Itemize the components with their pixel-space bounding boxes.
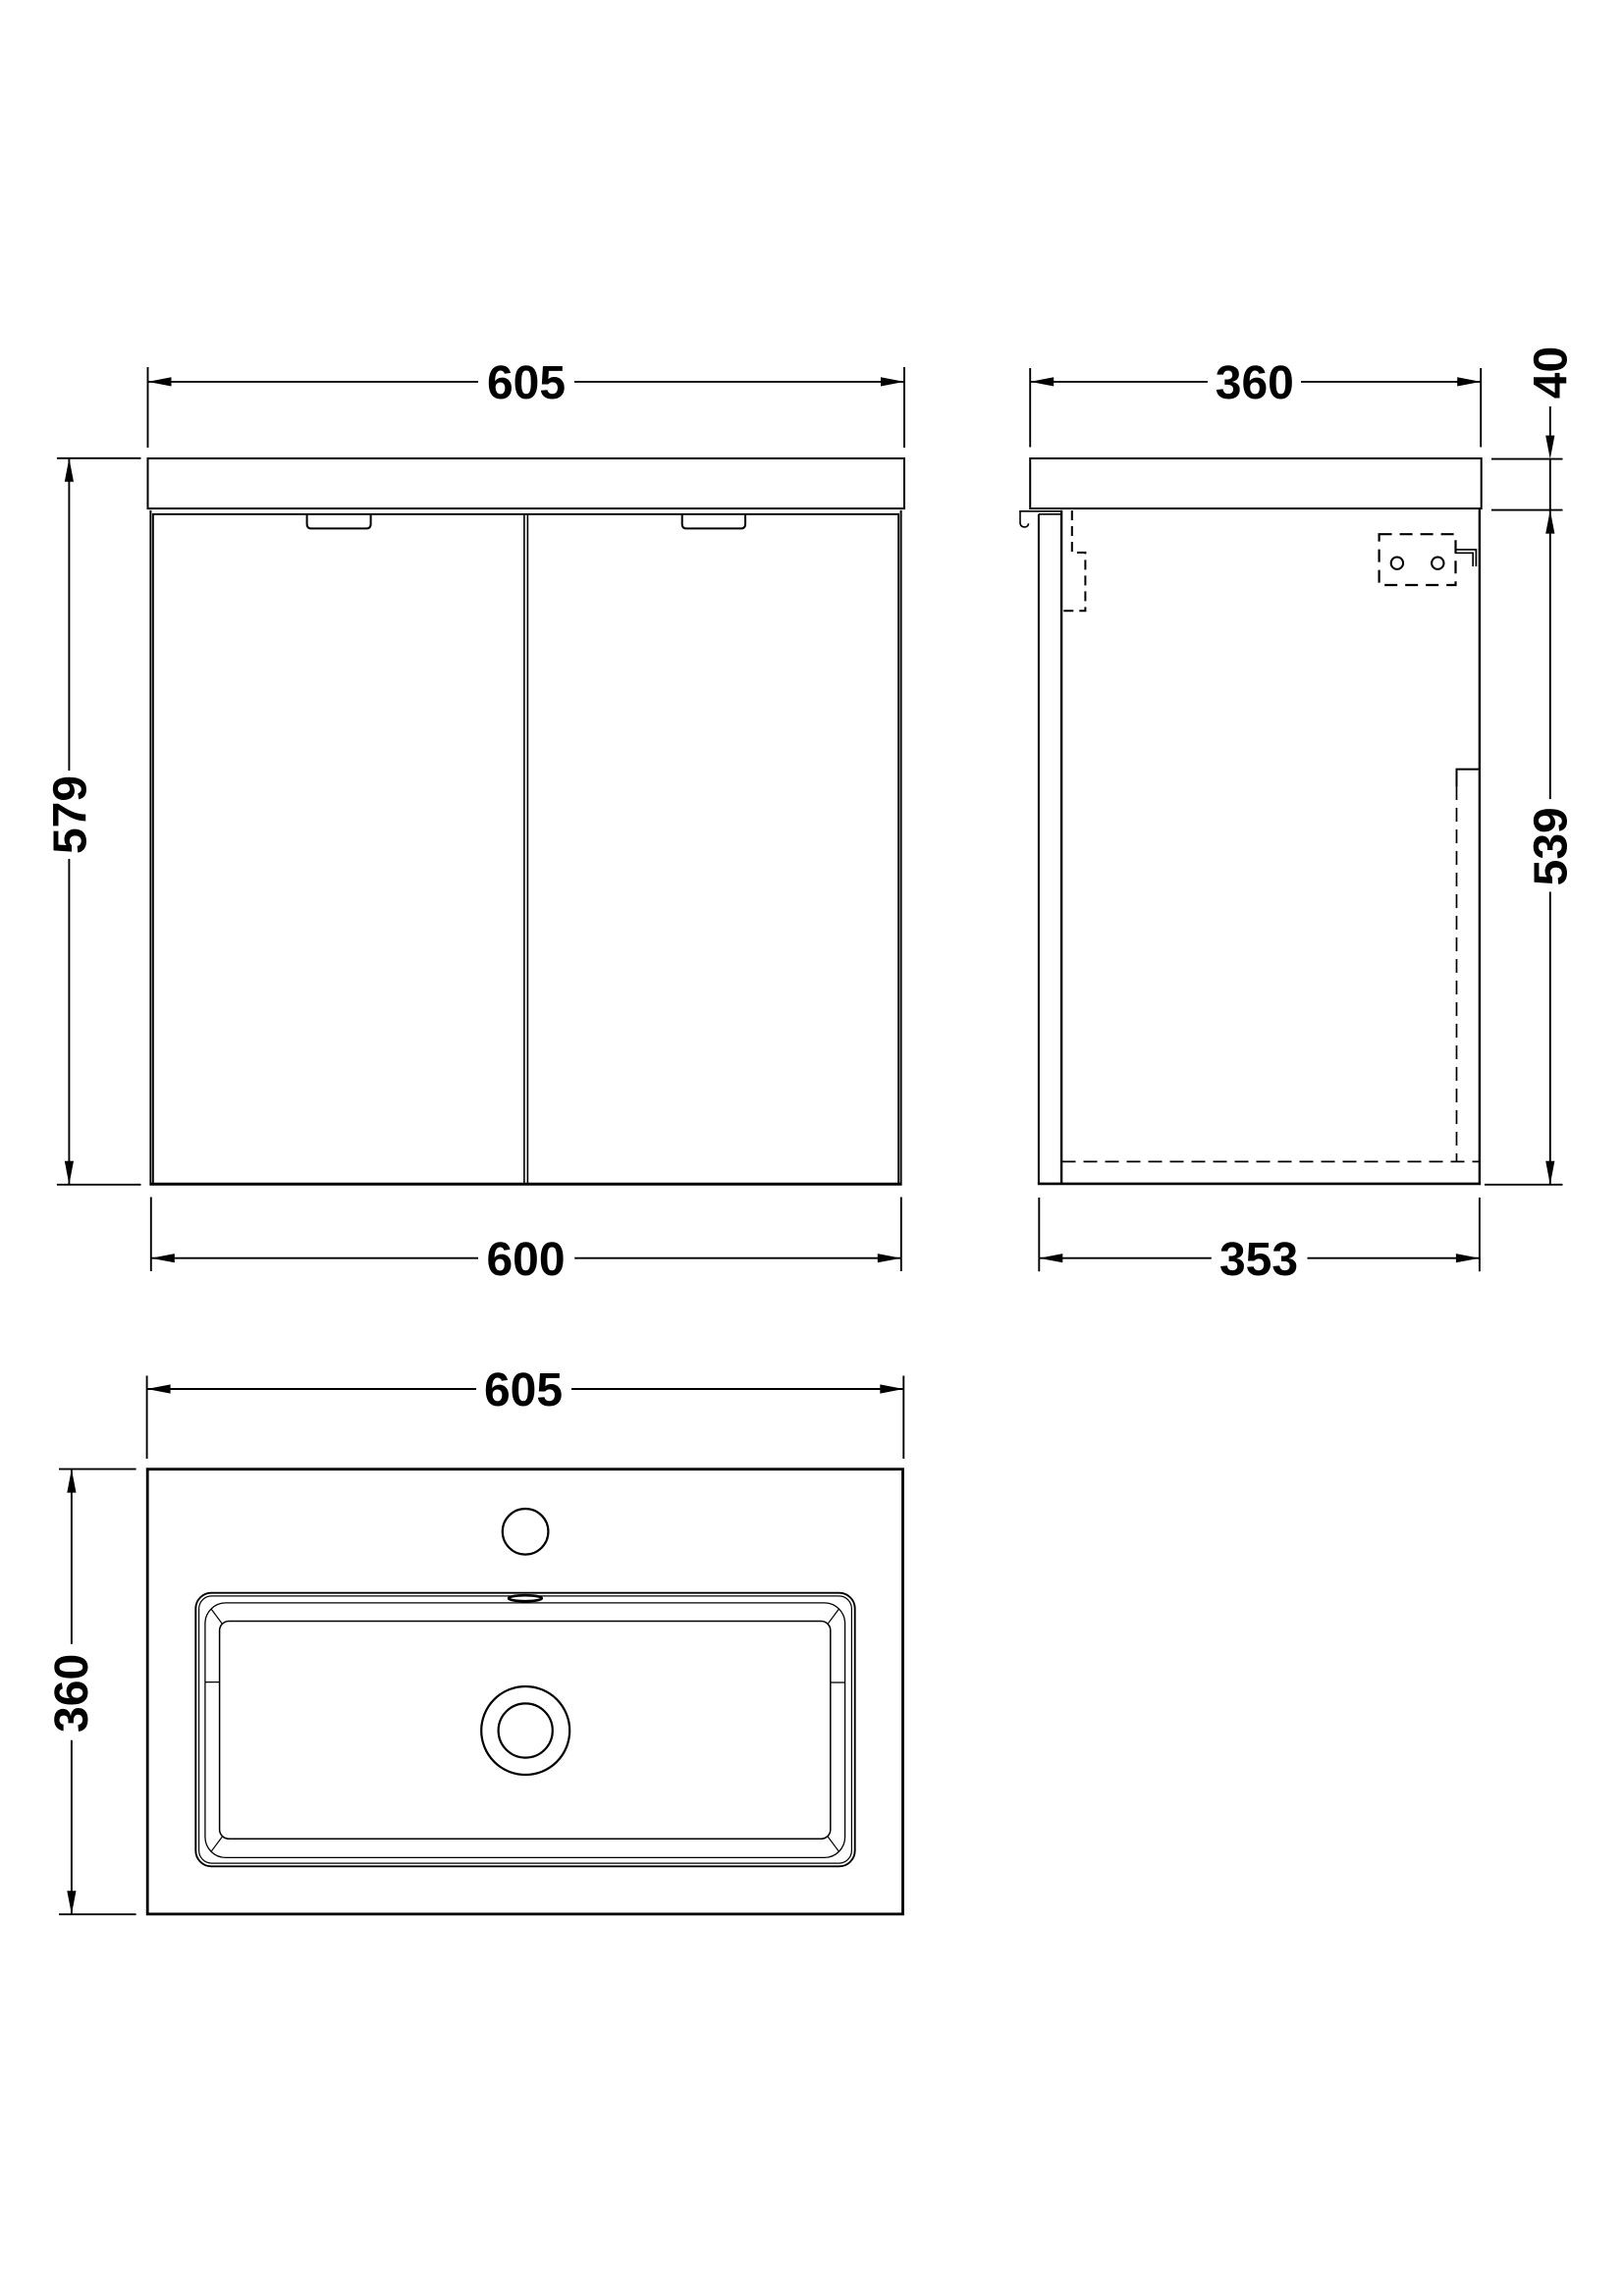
svg-text:40: 40 <box>1526 347 1578 399</box>
svg-text:360: 360 <box>46 1654 98 1733</box>
svg-text:605: 605 <box>487 357 566 409</box>
svg-text:353: 353 <box>1219 1234 1298 1286</box>
svg-text:360: 360 <box>1216 357 1294 409</box>
svg-text:605: 605 <box>484 1364 563 1416</box>
svg-text:579: 579 <box>45 775 97 854</box>
svg-text:539: 539 <box>1526 807 1578 885</box>
svg-text:600: 600 <box>486 1234 565 1286</box>
